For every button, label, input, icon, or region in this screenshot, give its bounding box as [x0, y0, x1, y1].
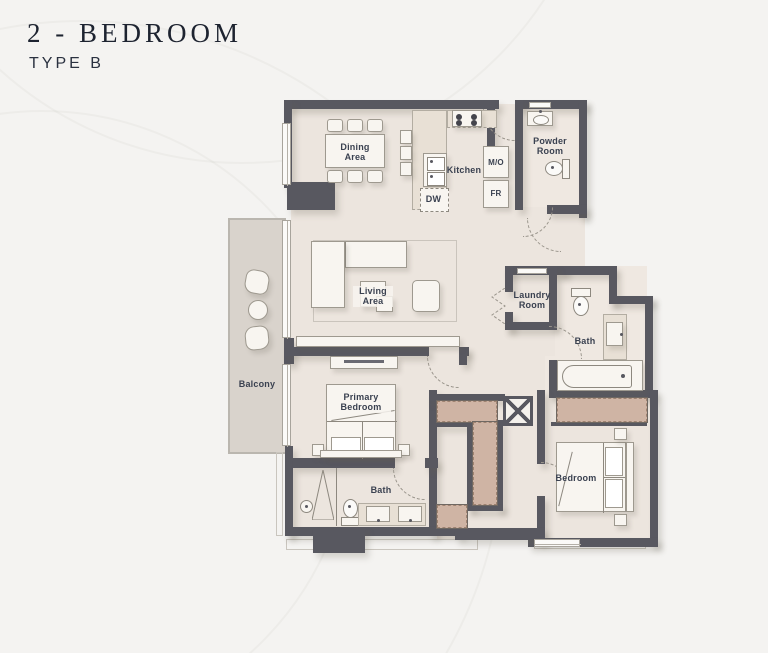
window [529, 102, 551, 108]
bath-sink [398, 506, 422, 522]
wall [285, 527, 463, 536]
wall [425, 458, 438, 468]
wall [650, 390, 658, 545]
bath-toilet [571, 288, 589, 316]
wall [579, 100, 587, 218]
window [534, 539, 580, 547]
nightstand [614, 428, 627, 440]
living-area-label: Living Area [353, 286, 393, 307]
service-shaft [503, 396, 533, 426]
dining-chair [347, 170, 363, 183]
bath-sink [606, 322, 623, 346]
powder-room-label: Powder Room [527, 136, 573, 157]
facade-line [276, 452, 283, 536]
wall [285, 446, 293, 536]
nightstand [614, 514, 627, 526]
balcony-door-window [282, 364, 291, 446]
wall [557, 266, 613, 275]
fridge-label: FR [483, 189, 509, 198]
floorplan-page: { "header": { "title": "2 - BEDROOM", "s… [0, 0, 768, 653]
wall [313, 528, 365, 553]
balcony-door-window [282, 220, 291, 338]
kitchen-shelf [400, 146, 412, 160]
sofa-chaise [311, 241, 345, 308]
upper-bath-label: Bath [568, 336, 602, 346]
bathtub [557, 360, 643, 391]
kitchen-label: Kitchen [442, 165, 486, 175]
corridor-closet [473, 422, 497, 505]
headboard [626, 442, 634, 512]
wall [515, 100, 523, 210]
dining-chair [327, 119, 343, 132]
window [517, 268, 547, 274]
balcony-table [248, 300, 268, 320]
wall [459, 347, 467, 365]
title-block: 2 - BEDROOM TYPE B [27, 18, 242, 73]
corridor-closet [437, 401, 497, 422]
microwave-oven-label: M/O [483, 158, 509, 167]
wall [549, 360, 557, 394]
laundry-bifold-doors [491, 288, 507, 324]
page-subtitle: TYPE B [29, 55, 242, 73]
armchair [412, 280, 440, 312]
bath-sink [366, 506, 390, 522]
wall [515, 100, 587, 109]
wall [437, 422, 471, 427]
media-console [296, 336, 460, 347]
wall [287, 100, 499, 109]
headboard [320, 450, 402, 458]
stove [452, 110, 482, 127]
dining-area-label: Dining Area [330, 142, 380, 163]
wall [537, 390, 545, 464]
shower-drain [300, 500, 313, 513]
wall [549, 390, 653, 398]
lower-bath-label: Bath [364, 485, 398, 495]
powder-sink [527, 111, 553, 126]
dishwasher-label: DW [420, 194, 447, 204]
wall [467, 505, 503, 511]
wall [551, 422, 647, 426]
wall [497, 420, 503, 510]
bedroom-closet [557, 398, 647, 422]
wall [547, 205, 587, 214]
dining-chair [367, 170, 383, 183]
shower-head [312, 470, 334, 520]
dining-chair [367, 119, 383, 132]
wall [287, 182, 335, 210]
linen-closet [437, 505, 467, 528]
balcony-label: Balcony [232, 379, 282, 389]
kitchen-shelf [400, 130, 412, 144]
wall [284, 347, 429, 356]
wall [645, 296, 653, 398]
bath-toilet [341, 499, 358, 525]
wall [429, 394, 505, 401]
page-title: 2 - BEDROOM [27, 18, 242, 49]
kitchen-shelf [400, 162, 412, 176]
window [282, 123, 291, 185]
primary-bedroom-label: Primary Bedroom [331, 392, 391, 413]
shower-glass [336, 468, 337, 526]
dining-chair [347, 119, 363, 132]
powder-toilet [545, 159, 569, 177]
bedroom-label: Bedroom [552, 473, 600, 483]
balcony-chair [244, 325, 270, 351]
sofa-seam [345, 242, 346, 267]
wall [455, 528, 545, 540]
laundry-room-label: Laundry Room [509, 290, 555, 311]
wall [293, 458, 395, 468]
tv [344, 360, 384, 363]
dining-chair [327, 170, 343, 183]
